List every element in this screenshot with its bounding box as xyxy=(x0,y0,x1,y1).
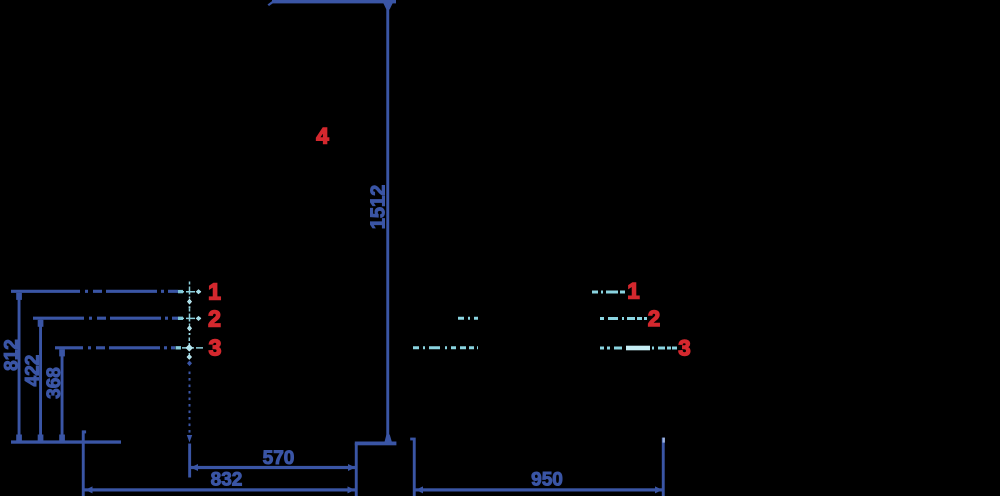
svg-text:422: 422 xyxy=(23,355,44,387)
svg-text:3: 3 xyxy=(209,335,222,361)
svg-text:1: 1 xyxy=(627,279,639,304)
svg-text:1: 1 xyxy=(208,279,221,305)
svg-text:570: 570 xyxy=(263,448,295,469)
svg-text:2: 2 xyxy=(648,306,660,331)
svg-text:2: 2 xyxy=(208,306,221,332)
svg-text:812: 812 xyxy=(2,339,23,371)
svg-text:368: 368 xyxy=(44,367,65,399)
svg-text:1512: 1512 xyxy=(368,185,390,230)
svg-text:3: 3 xyxy=(678,335,690,360)
svg-text:4: 4 xyxy=(316,124,329,149)
svg-text:832: 832 xyxy=(211,470,243,491)
svg-text:950: 950 xyxy=(531,470,563,491)
